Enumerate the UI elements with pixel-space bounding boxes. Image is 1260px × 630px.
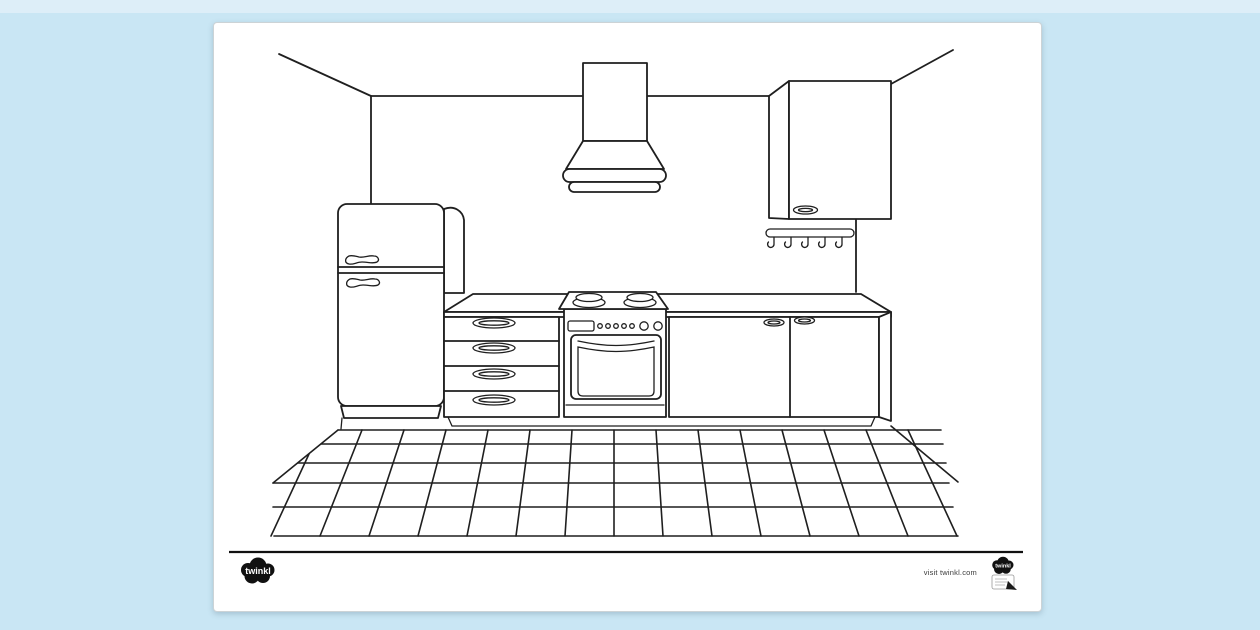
twinkl-logo-text: twinkl <box>245 566 271 576</box>
background-top-strip <box>0 0 1260 13</box>
page-background: twinkl twinkl visit twinkl.com <box>0 0 1260 630</box>
colouring-sheet: twinkl twinkl visit twinkl.com <box>213 22 1042 612</box>
utensil-rail <box>766 229 854 247</box>
cabinet-plinth <box>448 417 875 426</box>
twinkl-logo: twinkl <box>241 558 275 584</box>
base-cabinet <box>669 312 891 421</box>
worktop <box>444 294 891 317</box>
oven <box>559 292 668 417</box>
visit-twinkl-link: visit twinkl.com <box>924 568 977 577</box>
wall-cabinet <box>769 81 891 219</box>
quality-badge: twinkl <box>992 557 1017 590</box>
cooker-hood <box>563 63 666 192</box>
drawer-unit <box>444 317 559 417</box>
badge-logo-text: twinkl <box>995 564 1011 570</box>
tiled-floor <box>271 426 958 536</box>
kitchen-line-art: twinkl twinkl <box>214 23 1041 611</box>
